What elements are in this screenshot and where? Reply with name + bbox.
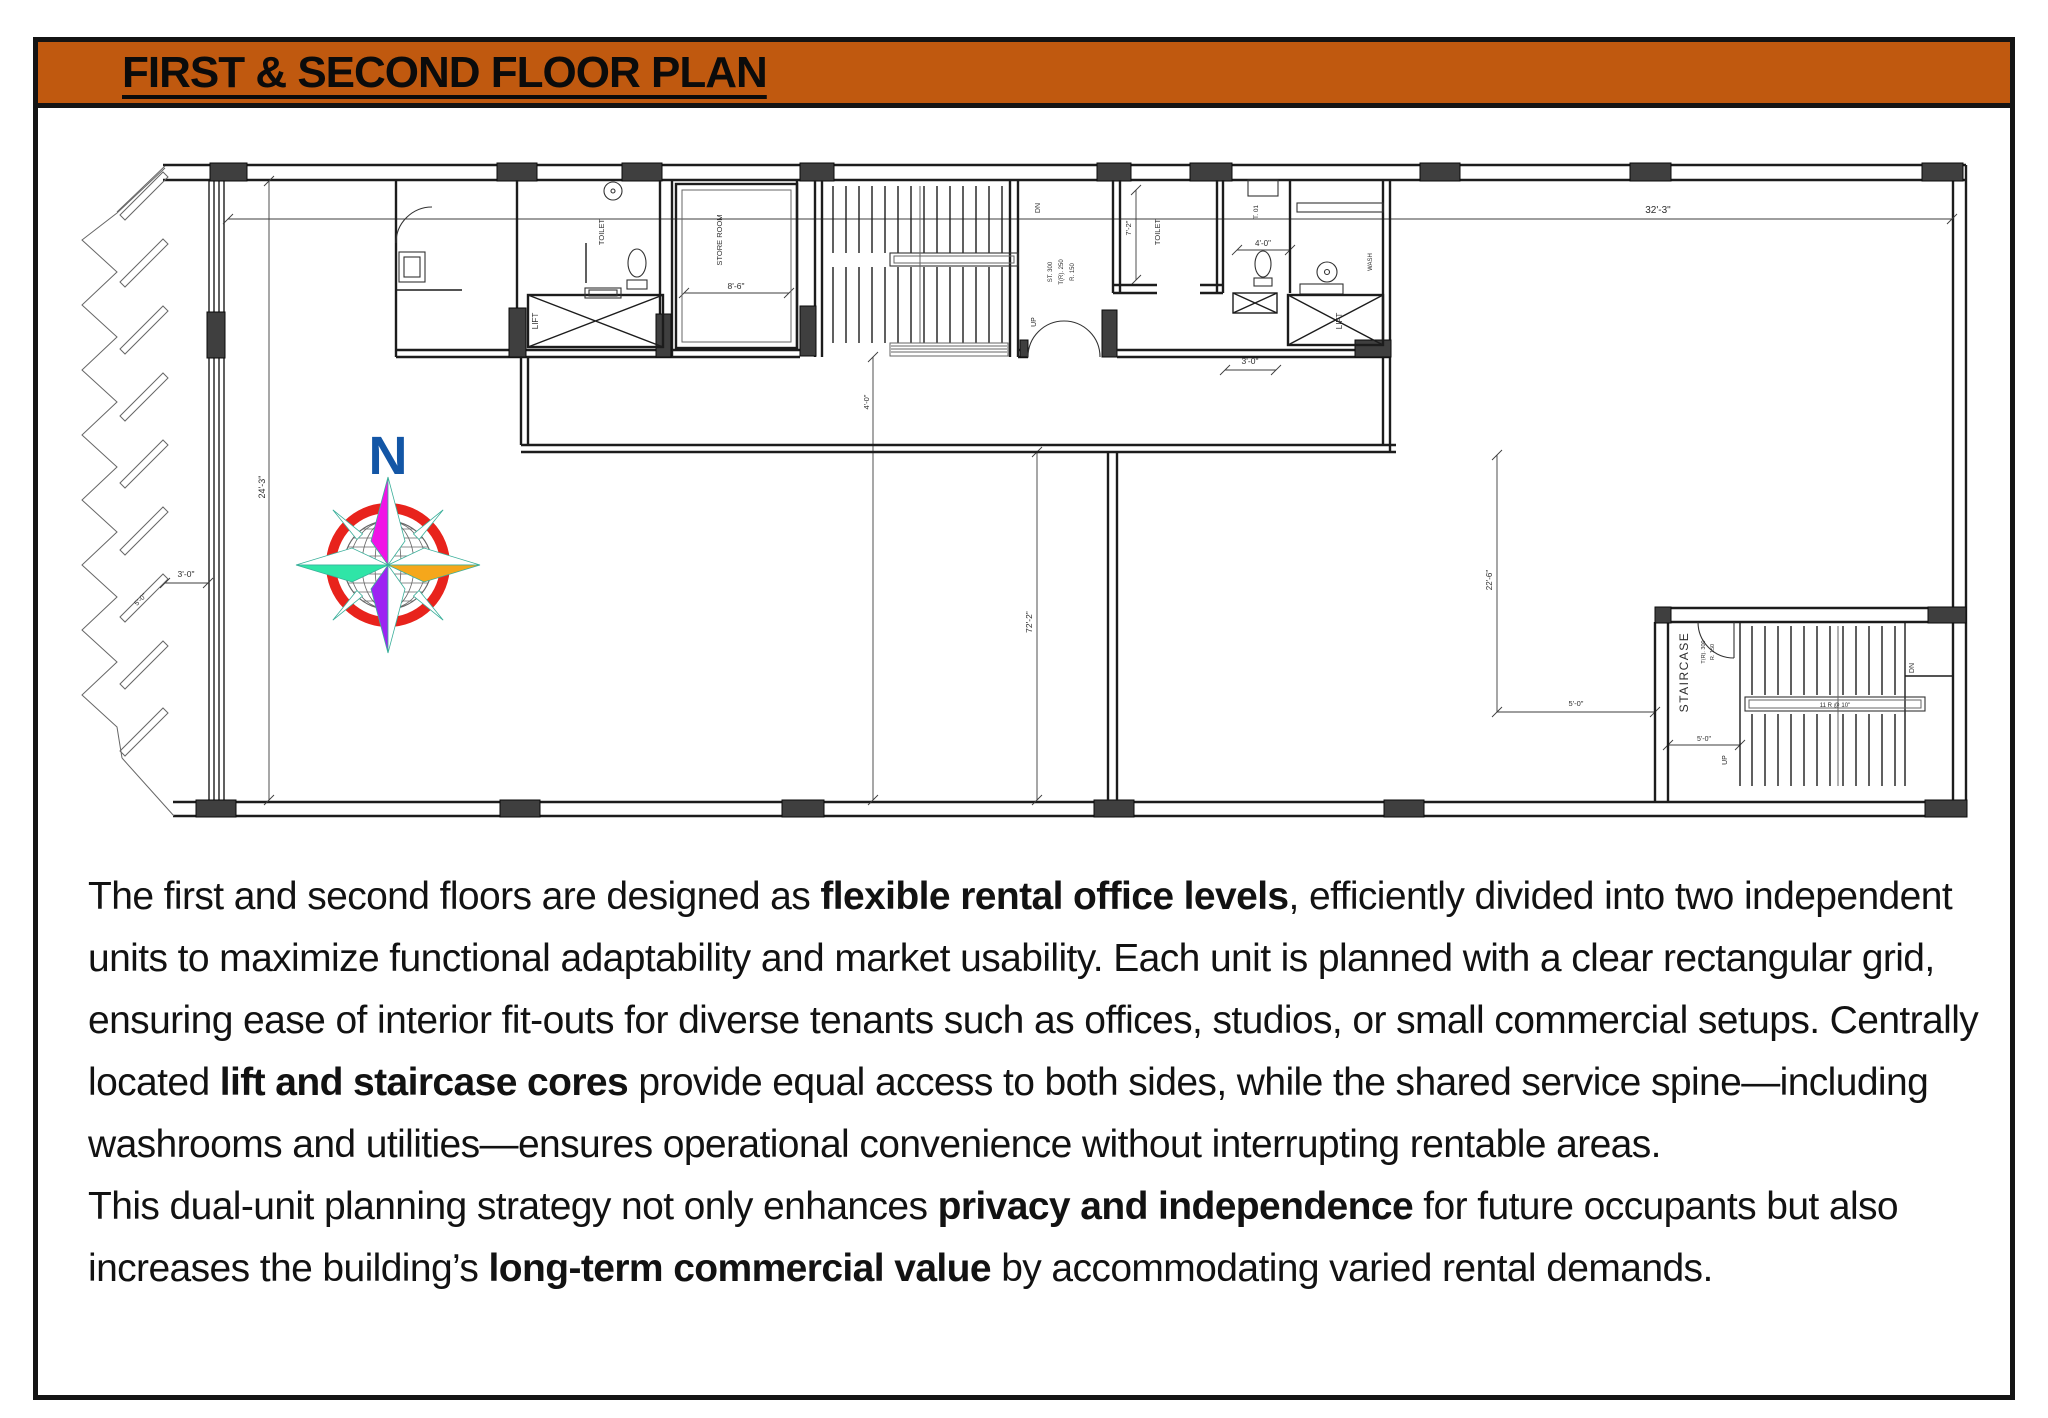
title-banner: FIRST & SECOND FLOOR PLAN [33, 37, 2015, 108]
page-title: FIRST & SECOND FLOOR PLAN [122, 48, 767, 98]
description-paragraph: The first and second floors are designed… [88, 866, 1993, 1300]
